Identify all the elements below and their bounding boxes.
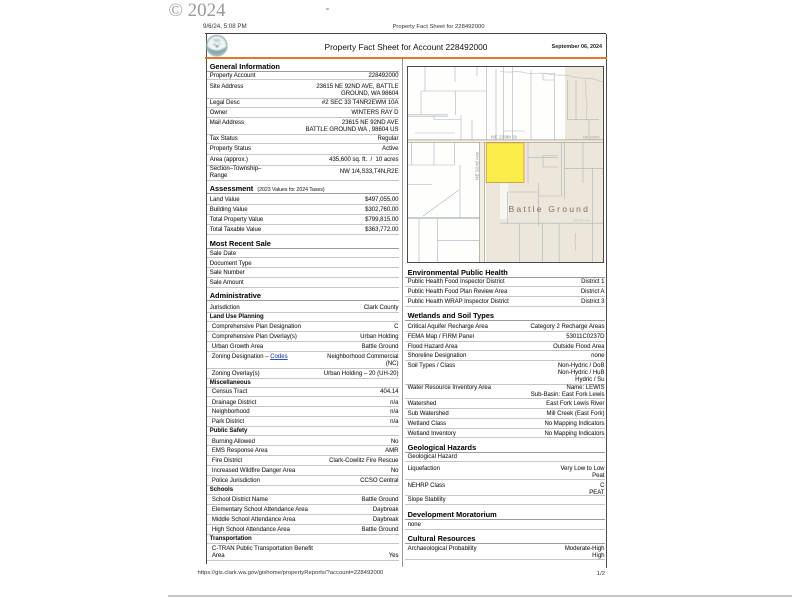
svg-text:NE 239th St: NE 239th St <box>491 135 518 141</box>
svg-text:NE 92nd Ave: NE 92nd Ave <box>475 152 481 180</box>
svg-text:NE 87th Wy: NE 87th Wy <box>574 219 590 223</box>
svg-text:Battle Ground: Battle Ground <box>509 204 591 214</box>
svg-text:NE 239th: NE 239th <box>583 135 600 140</box>
